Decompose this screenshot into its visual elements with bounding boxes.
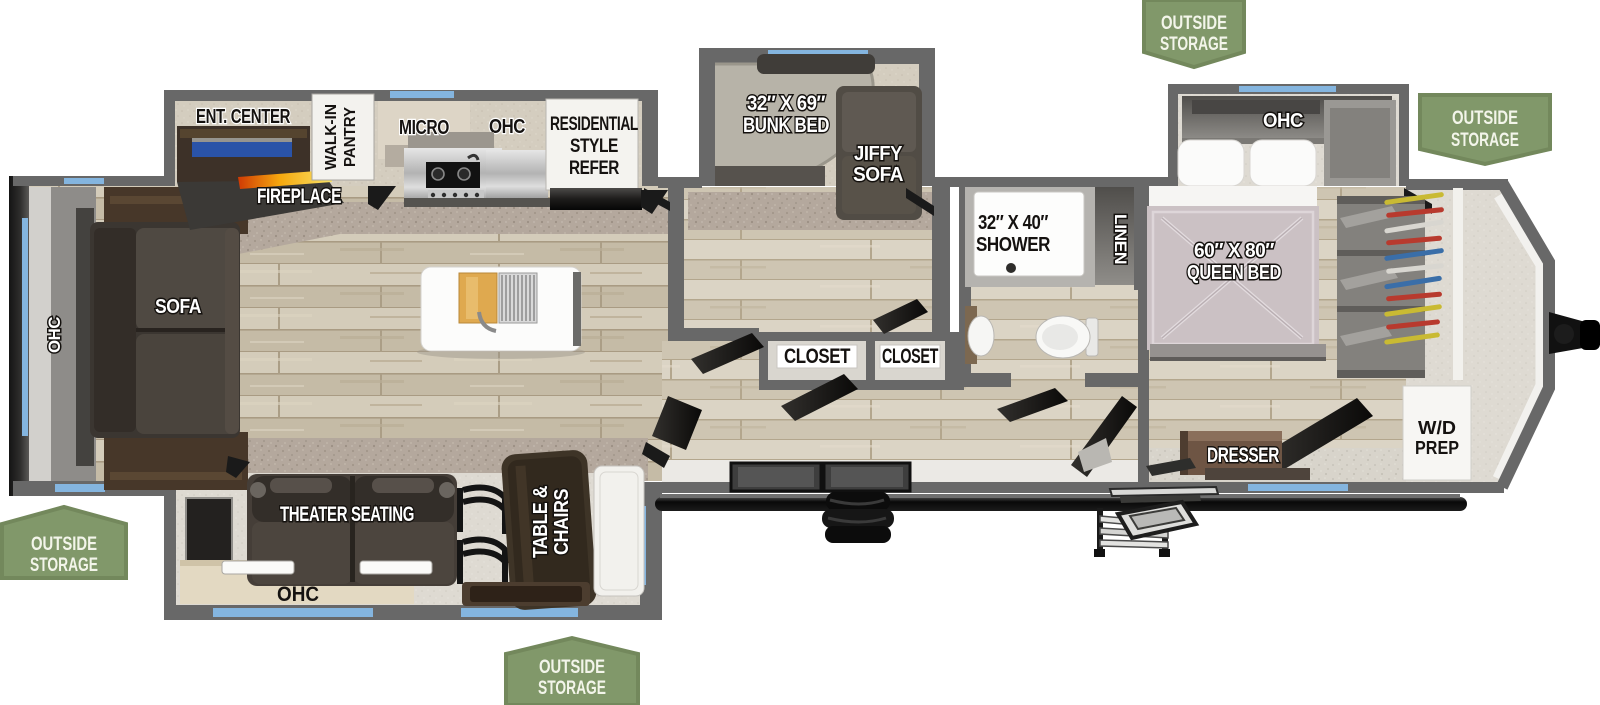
svg-text:CHAIRS: CHAIRS xyxy=(551,489,573,555)
svg-text:ENT. CENTER: ENT. CENTER xyxy=(196,106,291,128)
svg-text:CLOSET: CLOSET xyxy=(784,345,851,368)
svg-text:RESIDENTIAL: RESIDENTIAL xyxy=(550,114,639,135)
svg-text:32″ X 69″: 32″ X 69″ xyxy=(747,92,825,115)
svg-text:STYLE: STYLE xyxy=(570,136,618,157)
svg-text:SOFA: SOFA xyxy=(853,164,903,186)
svg-text:PANTRY: PANTRY xyxy=(342,107,359,167)
svg-text:SHOWER: SHOWER xyxy=(976,234,1051,256)
svg-text:OHC: OHC xyxy=(277,583,319,606)
svg-text:LINEN: LINEN xyxy=(1111,214,1130,264)
svg-text:CLOSET: CLOSET xyxy=(882,345,938,368)
svg-text:MICRO: MICRO xyxy=(399,117,449,139)
svg-text:WALK-IN: WALK-IN xyxy=(323,104,340,170)
svg-text:STORAGE: STORAGE xyxy=(1160,34,1228,55)
svg-text:OUTSIDE: OUTSIDE xyxy=(31,534,97,555)
svg-text:OHC: OHC xyxy=(45,317,64,353)
svg-text:DRESSER: DRESSER xyxy=(1207,444,1279,467)
svg-text:STORAGE: STORAGE xyxy=(538,678,606,699)
svg-text:FIREPLACE: FIREPLACE xyxy=(257,185,341,208)
svg-text:OHC: OHC xyxy=(1263,110,1303,132)
svg-text:OUTSIDE: OUTSIDE xyxy=(539,657,605,678)
svg-text:60″ X 80″: 60″ X 80″ xyxy=(1194,240,1275,262)
svg-text:STORAGE: STORAGE xyxy=(1451,130,1519,151)
svg-text:BUNK BED: BUNK BED xyxy=(743,114,829,137)
svg-text:OUTSIDE: OUTSIDE xyxy=(1452,108,1518,129)
svg-text:STORAGE: STORAGE xyxy=(30,555,98,576)
svg-text:THEATER SEATING: THEATER SEATING xyxy=(280,503,414,526)
svg-text:W/D: W/D xyxy=(1418,418,1456,438)
svg-text:QUEEN BED: QUEEN BED xyxy=(1187,262,1281,284)
svg-text:SOFA: SOFA xyxy=(155,296,201,318)
svg-text:REFER: REFER xyxy=(569,158,620,179)
svg-text:OHC: OHC xyxy=(489,116,525,138)
svg-text:32″ X 40″: 32″ X 40″ xyxy=(978,212,1049,234)
svg-text:PREP: PREP xyxy=(1415,438,1459,458)
svg-text:OUTSIDE: OUTSIDE xyxy=(1161,13,1227,34)
svg-text:JIFFY: JIFFY xyxy=(854,143,903,165)
svg-text:TABLE &: TABLE & xyxy=(530,486,552,558)
